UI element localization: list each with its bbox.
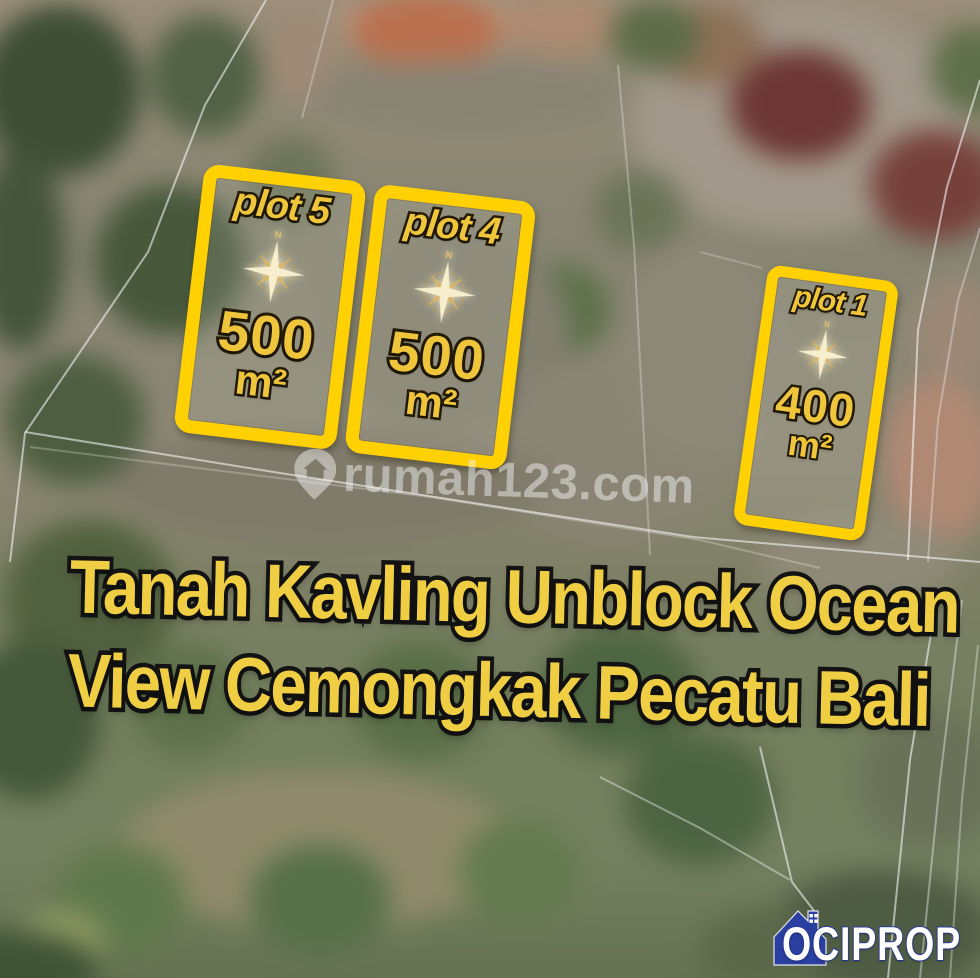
headline-line-2: View Cemongkak Pecatu Bali xyxy=(67,634,912,747)
plot-4-unit: m² xyxy=(403,379,459,428)
compass-icon: N xyxy=(233,225,316,311)
compass-icon: N xyxy=(789,315,857,387)
agency-logo-text: OCIPROP xyxy=(782,916,961,971)
plot-5-overlay: plot 5 N 500 m² xyxy=(173,163,366,450)
agency-logo: OCIPROP xyxy=(772,903,968,973)
plot-5-area: 500 xyxy=(215,303,317,367)
plot-5-unit: m² xyxy=(233,358,289,407)
land-listing-image: plot 5 N 500 m² plot 4 N xyxy=(0,0,980,978)
plot-4-overlay: plot 4 N 500 m² xyxy=(343,183,536,470)
svg-text:N: N xyxy=(445,250,453,262)
compass-icon: N xyxy=(403,245,486,331)
plot-4-area: 500 xyxy=(386,323,488,387)
plot-group-5-4: plot 5 N 500 m² plot 4 N xyxy=(173,163,537,471)
listing-headline: Tanah Kavling Unblock Ocean View Cemongk… xyxy=(0,539,980,749)
svg-text:N: N xyxy=(824,319,831,329)
plot-1-unit: m² xyxy=(786,425,835,467)
svg-text:N: N xyxy=(274,230,282,242)
